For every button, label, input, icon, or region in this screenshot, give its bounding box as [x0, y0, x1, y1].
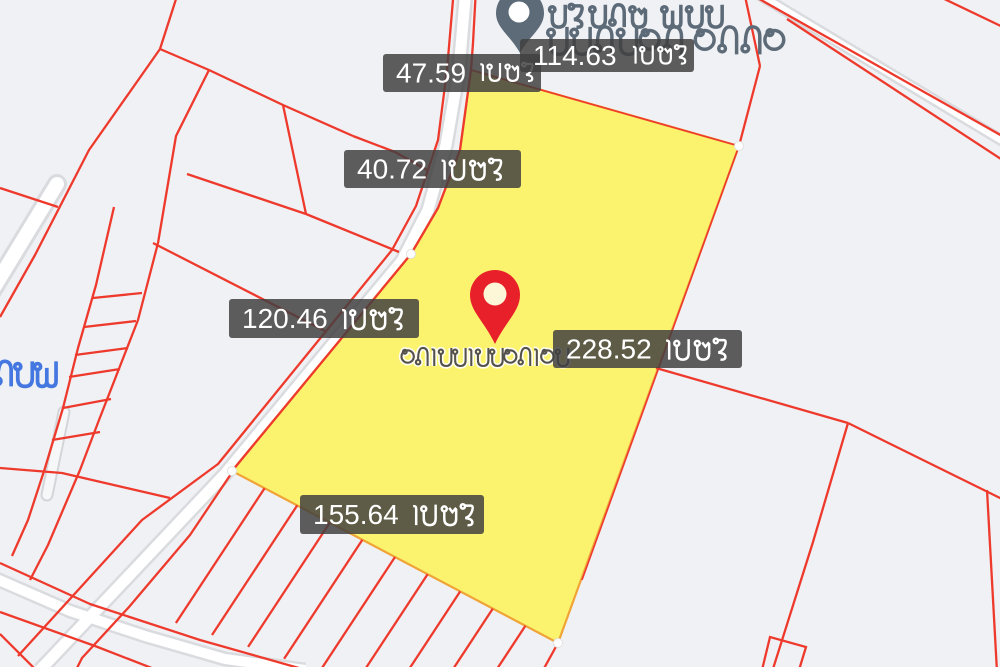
svg-text:120.46: 120.46 [242, 303, 328, 334]
svg-text:47.59: 47.59 [396, 58, 466, 89]
svg-text:40.72: 40.72 [357, 154, 427, 185]
svg-text:155.64: 155.64 [313, 499, 399, 530]
svg-text:114.63: 114.63 [533, 40, 617, 71]
svg-text:228.52: 228.52 [566, 334, 652, 365]
